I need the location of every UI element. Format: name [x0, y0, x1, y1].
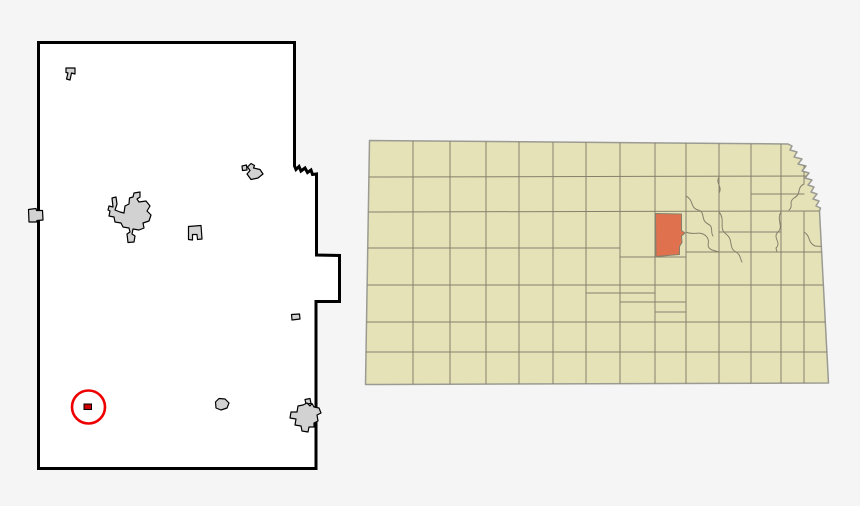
town-shape-west-edge: [29, 209, 44, 223]
town-shape-south: [216, 399, 230, 411]
town-shape-northeast-small: [242, 165, 247, 171]
highlighted-town-square: [84, 404, 92, 410]
county-detail-map: [29, 43, 340, 469]
page: { "canvas": { "width": 860, "height": 50…: [0, 0, 860, 506]
state-map: [365, 141, 829, 385]
locator-map-svg: [0, 0, 860, 506]
town-shape-east-tiny: [292, 314, 301, 320]
locator-map-image: [0, 0, 860, 506]
